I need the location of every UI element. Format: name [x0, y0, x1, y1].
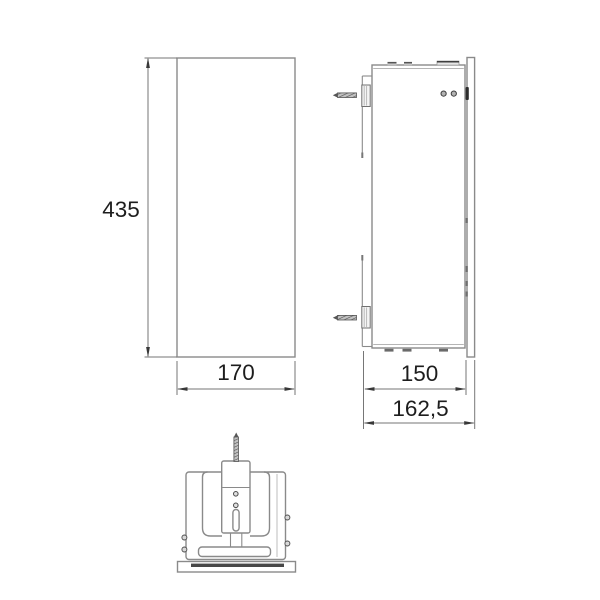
- wall-screw-icon: [338, 93, 357, 98]
- width-dimension-label: 170: [217, 360, 255, 385]
- fitting-tab: [385, 349, 394, 352]
- overall-depth-dimension-label: 162,5: [392, 396, 448, 421]
- wall-bracket-top: [333, 85, 370, 107]
- arrowhead-right: [456, 387, 467, 391]
- fitting-tab-edge: [388, 62, 397, 64]
- arrowhead-up: [146, 58, 150, 69]
- base-plate-seal: [191, 564, 284, 567]
- arrowhead-left: [177, 387, 188, 391]
- depth-dimension-label: 150: [401, 361, 439, 386]
- front-door-panel: [467, 58, 475, 358]
- door-catch: [466, 87, 469, 100]
- side-screw-bump: [285, 541, 290, 546]
- carriage-block: [222, 461, 250, 533]
- fitting-tab: [403, 349, 412, 352]
- wall-screw-icon: [234, 437, 239, 462]
- rail-end-cap: [361, 153, 363, 159]
- arrowhead-right: [464, 421, 475, 425]
- screw-head-dot: [441, 91, 446, 96]
- wall-screw-icon: [338, 315, 357, 320]
- adjustment-hole: [234, 492, 239, 497]
- bracket-block: [362, 307, 370, 329]
- wall-bracket-bottom: [333, 307, 370, 329]
- arrowhead-down: [146, 347, 150, 358]
- mounting-rail-bottom: [361, 255, 371, 347]
- screw-head-dot: [451, 91, 456, 96]
- front-view: 435 170: [102, 58, 295, 396]
- panel-seam-mark: [466, 281, 468, 286]
- width-dimension: 170: [177, 360, 295, 395]
- fitting-tab: [439, 349, 448, 352]
- side-screw-bump: [182, 547, 187, 552]
- arrowhead-left: [364, 421, 375, 425]
- height-dimension: 435: [102, 58, 177, 358]
- hinge-plate-edge: [437, 61, 459, 63]
- bottom-edge-fittings: [385, 349, 449, 352]
- side-screw-bump: [285, 515, 290, 520]
- fitting-tab-edge: [404, 62, 412, 64]
- panel-seam-mark: [466, 292, 468, 297]
- panel-seam-mark: [466, 266, 468, 272]
- front-panel-outline: [177, 58, 295, 357]
- side-view: 150 162,5: [333, 58, 475, 430]
- cabinet-body-outline: [372, 65, 465, 348]
- arrowhead-right: [285, 387, 296, 391]
- bottom-view: [178, 433, 296, 573]
- screw-tip: [234, 433, 239, 438]
- side-screw-bump: [182, 535, 187, 540]
- technical-drawing: 435 170: [0, 0, 600, 600]
- bracket-block: [362, 85, 370, 107]
- screw-tip: [333, 93, 338, 98]
- adjustment-hole: [234, 503, 239, 508]
- rail-end-cap: [361, 255, 363, 261]
- height-dimension-label: 435: [102, 197, 140, 222]
- slide-ledge: [199, 547, 271, 557]
- panel-seam-mark: [466, 218, 468, 223]
- screw-tip: [333, 315, 338, 320]
- arrowhead-left: [364, 387, 375, 391]
